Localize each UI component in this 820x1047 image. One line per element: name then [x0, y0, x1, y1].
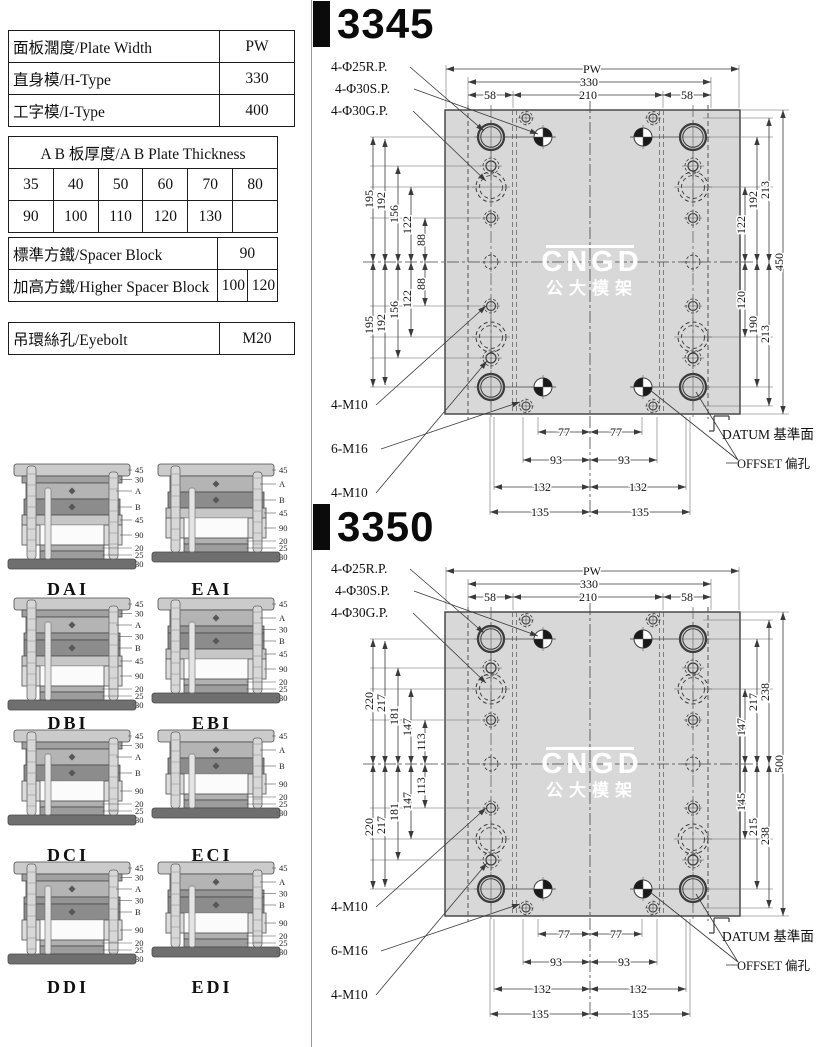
dim-132-right: 132 — [629, 480, 647, 494]
plate-drawing: CNGD 公大模架 4-Φ25R.P. 4-Φ30S.P. 4-Φ30G.P. … — [313, 557, 818, 1047]
mold-name: DDI — [2, 977, 134, 998]
mold-figure-dai: 4530AB4590202530DAI — [2, 460, 152, 600]
mold-figure-ebi: 45A30B4590202530EBI — [146, 594, 296, 734]
dim-210: 210 — [579, 590, 597, 604]
dim-left: 181 — [387, 707, 401, 725]
svg-text:45: 45 — [135, 656, 144, 666]
svg-text:B: B — [279, 900, 285, 910]
dim-right: 238 — [758, 827, 772, 845]
plate-drawing: CNGD 公大模架 4-Φ25R.P. 4-Φ30S.P. 4-Φ30G.P. … — [313, 55, 818, 545]
eyebolt-table: 吊環絲孔/Eyebolt M20 — [8, 322, 295, 355]
svg-text:45: 45 — [279, 508, 288, 518]
watermark-logo: CNGD — [541, 748, 642, 780]
svg-text:30: 30 — [135, 954, 144, 964]
dim-total-height: 450 — [772, 253, 786, 271]
label-guide-pin: 4-Φ30G.P. — [331, 103, 388, 118]
dim-77-left: 77 — [558, 425, 570, 439]
svg-text:B: B — [279, 761, 285, 771]
svg-text:30: 30 — [279, 889, 288, 899]
dim-93-left: 93 — [550, 955, 562, 969]
dim-right: 147 — [734, 718, 748, 736]
dim-135-left: 135 — [531, 1007, 549, 1021]
plate-width-table: 面板濶度/Plate Width PW 直身模/H-Type 330 工字模/I… — [8, 30, 295, 127]
label-m10-top: 4-M10 — [331, 899, 368, 914]
label-m16: 6-M16 — [331, 943, 368, 958]
spacer-block-table: 標準方鐵/Spacer Block 90 加高方鐵/Higher Spacer … — [8, 237, 278, 302]
dim-pw: PW — [583, 564, 602, 578]
model-number: 3350 — [337, 504, 434, 550]
ab-cell: 80 — [233, 169, 278, 201]
ab-cell: 70 — [188, 169, 233, 201]
watermark-cjk: 公大模架 — [546, 278, 638, 298]
dim-left: 192 — [374, 192, 388, 210]
row-value: PW — [220, 31, 295, 63]
svg-text:B: B — [279, 495, 285, 505]
dim-left: 217 — [374, 694, 388, 712]
mold-figure-dbi: 4530A30B4590202530DBI — [2, 594, 152, 734]
svg-text:30: 30 — [135, 896, 144, 906]
svg-text:90: 90 — [279, 918, 288, 928]
ab-cell: 50 — [98, 169, 143, 201]
mold-graphic: 45A30B4590202530 — [146, 594, 296, 712]
svg-text:30: 30 — [279, 693, 288, 703]
dim-right: 213 — [758, 325, 772, 343]
svg-text:30: 30 — [135, 475, 144, 485]
mold-graphic: 4530A30B90202530 — [2, 858, 152, 976]
mold-name: EDI — [146, 977, 278, 998]
svg-text:45: 45 — [279, 465, 288, 475]
row-label: 面板濶度/Plate Width — [9, 31, 220, 63]
svg-text:90: 90 — [135, 786, 144, 796]
label-offset: OFFSET 偏孔 — [737, 958, 811, 973]
ab-cell: 60 — [143, 169, 188, 201]
svg-text:30: 30 — [279, 947, 288, 957]
label-support-pin: 4-Φ30S.P. — [335, 81, 390, 96]
label-m10-top: 4-M10 — [331, 397, 368, 412]
dim-left: 122 — [400, 290, 414, 308]
svg-text:45: 45 — [135, 599, 144, 609]
dim-left: 156 — [387, 205, 401, 223]
svg-text:30: 30 — [135, 609, 144, 619]
svg-text:45: 45 — [135, 515, 144, 525]
dim-right: 217 — [746, 693, 760, 711]
dim-93-right: 93 — [618, 453, 630, 467]
mold-graphic: 4530AB4590202530 — [2, 460, 152, 578]
row-label: 吊環絲孔/Eyebolt — [9, 323, 220, 355]
title-block-mark — [313, 1, 330, 47]
svg-text:A: A — [279, 877, 286, 887]
mold-graphic: 45A30B90202530 — [146, 858, 296, 976]
dim-left: 192 — [374, 314, 388, 332]
dim-left: 181 — [387, 803, 401, 821]
dim-left: 147 — [400, 792, 414, 810]
row-value: 330 — [220, 63, 295, 95]
mold-graphic: 4530A30B4590202530 — [2, 594, 152, 712]
row-label: 加高方鐵/Higher Spacer Block — [9, 270, 218, 302]
dim-132-right: 132 — [629, 982, 647, 996]
svg-text:30: 30 — [135, 632, 144, 642]
dim-pw: PW — [583, 62, 602, 76]
row-label: 工字模/I-Type — [9, 95, 220, 127]
row-value: 400 — [220, 95, 295, 127]
svg-text:45: 45 — [135, 465, 144, 475]
dim-77-right: 77 — [610, 425, 622, 439]
svg-text:90: 90 — [279, 523, 288, 533]
svg-text:30: 30 — [279, 552, 288, 562]
svg-text:30: 30 — [135, 741, 144, 751]
dim-left: 113 — [414, 733, 428, 751]
mold-figure-eci: 45AB90202530ECI — [146, 726, 296, 866]
ab-cell: 90 — [9, 201, 54, 233]
dim-77-left: 77 — [558, 927, 570, 941]
dim-93-left: 93 — [550, 453, 562, 467]
svg-text:90: 90 — [135, 925, 144, 935]
label-datum: DATUM 基準面 — [722, 928, 814, 944]
watermark-cjk: 公大模架 — [546, 780, 638, 800]
dim-58-right: 58 — [681, 590, 693, 604]
svg-text:45: 45 — [279, 649, 288, 659]
dim-right: 122 — [734, 216, 748, 234]
dim-left: 113 — [414, 777, 428, 795]
label-support-pin: 4-Φ30S.P. — [335, 583, 390, 598]
dim-left: 88 — [414, 234, 428, 246]
svg-text:B: B — [135, 643, 141, 653]
row-value: 100 — [217, 270, 247, 302]
dim-right: 145 — [734, 793, 748, 811]
ab-cell — [233, 201, 278, 233]
model-3350-header: 3350 — [313, 504, 434, 552]
dim-135-right: 135 — [631, 505, 649, 519]
ab-cell: 35 — [9, 169, 54, 201]
dim-58-left: 58 — [484, 88, 496, 102]
ab-cell: 100 — [53, 201, 98, 233]
ab-cell: 40 — [53, 169, 98, 201]
svg-text:45: 45 — [135, 863, 144, 873]
mold-figure-dci: 4530AB90202530DCI — [2, 726, 152, 866]
dim-93-right: 93 — [618, 955, 630, 969]
svg-text:30: 30 — [135, 815, 144, 825]
svg-text:B: B — [135, 768, 141, 778]
dim-right: 213 — [758, 181, 772, 199]
svg-text:30: 30 — [135, 873, 144, 883]
dim-77-right: 77 — [610, 927, 622, 941]
dim-210: 210 — [579, 88, 597, 102]
svg-text:B: B — [135, 907, 141, 917]
label-m10-bottom: 4-M10 — [331, 987, 368, 1002]
dim-right: 120 — [734, 291, 748, 309]
svg-text:45: 45 — [279, 731, 288, 741]
svg-text:A: A — [135, 752, 142, 762]
dim-58-right: 58 — [681, 88, 693, 102]
row-label: 標準方鐵/Spacer Block — [9, 238, 218, 270]
svg-text:30: 30 — [135, 700, 144, 710]
label-guide-pin: 4-Φ30G.P. — [331, 605, 388, 620]
mold-graphic: 45AB90202530 — [146, 726, 296, 844]
watermark-logo: CNGD — [541, 246, 642, 278]
svg-text:90: 90 — [279, 779, 288, 789]
svg-text:A: A — [135, 620, 142, 630]
dim-135-left: 135 — [531, 505, 549, 519]
dim-330: 330 — [580, 75, 598, 89]
dim-132-left: 132 — [533, 480, 551, 494]
title-block-mark — [313, 504, 330, 550]
model-3345-header: 3345 — [313, 1, 434, 49]
mold-figure-eai: 45AB4590202530EAI — [146, 460, 296, 600]
svg-text:45: 45 — [135, 731, 144, 741]
svg-text:30: 30 — [279, 808, 288, 818]
mold-graphic: 4530AB90202530 — [2, 726, 152, 844]
svg-text:A: A — [135, 486, 142, 496]
mold-figure-ddi: 4530A30B90202530DDI — [2, 858, 152, 998]
svg-text:B: B — [135, 502, 141, 512]
svg-text:90: 90 — [279, 664, 288, 674]
row-value: 90 — [217, 238, 277, 270]
svg-text:45: 45 — [279, 863, 288, 873]
dim-left: 195 — [362, 316, 376, 334]
dim-right: 192 — [746, 191, 760, 209]
label-m16: 6-M16 — [331, 441, 368, 456]
row-label: 直身模/H-Type — [9, 63, 220, 95]
drawing-3350: CNGD 公大模架 4-Φ25R.P. 4-Φ30S.P. 4-Φ30G.P. … — [313, 557, 818, 1047]
svg-text:A: A — [279, 613, 286, 623]
svg-text:45: 45 — [279, 599, 288, 609]
svg-text:30: 30 — [279, 625, 288, 635]
row-value: M20 — [220, 323, 295, 355]
label-m10-bottom: 4-M10 — [331, 485, 368, 500]
label-datum: DATUM 基準面 — [722, 426, 814, 442]
svg-text:B: B — [279, 636, 285, 646]
dim-left: 147 — [400, 718, 414, 736]
ab-cell: 130 — [188, 201, 233, 233]
ab-cell: 110 — [98, 201, 143, 233]
ab-table-title: A B 板厚度/A B Plate Thickness — [9, 137, 278, 169]
mold-graphic: 45AB4590202530 — [146, 460, 296, 578]
dim-135-right: 135 — [631, 1007, 649, 1021]
label-return-pin: 4-Φ25R.P. — [331, 59, 387, 74]
dim-right: 238 — [758, 683, 772, 701]
svg-text:30: 30 — [135, 559, 144, 569]
dim-total-height: 500 — [772, 755, 786, 773]
model-number: 3345 — [337, 1, 434, 47]
dim-left: 217 — [374, 816, 388, 834]
dim-left: 88 — [414, 278, 428, 290]
svg-text:90: 90 — [135, 671, 144, 681]
mold-figure-edi: 45A30B90202530EDI — [146, 858, 296, 998]
label-offset: OFFSET 偏孔 — [737, 456, 811, 471]
svg-text:A: A — [279, 479, 286, 489]
dim-132-left: 132 — [533, 982, 551, 996]
drawing-3345: CNGD 公大模架 4-Φ25R.P. 4-Φ30S.P. 4-Φ30G.P. … — [313, 55, 818, 545]
dim-58-left: 58 — [484, 590, 496, 604]
dim-left: 220 — [362, 818, 376, 836]
svg-text:A: A — [279, 745, 286, 755]
vertical-divider — [311, 0, 312, 1047]
ab-plate-thickness-table: A B 板厚度/A B Plate Thickness 35 40 50 60 … — [8, 136, 278, 233]
svg-text:90: 90 — [135, 530, 144, 540]
dim-330: 330 — [580, 577, 598, 591]
svg-text:A: A — [135, 884, 142, 894]
label-return-pin: 4-Φ25R.P. — [331, 561, 387, 576]
dim-left: 122 — [400, 216, 414, 234]
dim-left: 156 — [387, 301, 401, 319]
row-value: 120 — [247, 270, 277, 302]
ab-cell: 120 — [143, 201, 188, 233]
